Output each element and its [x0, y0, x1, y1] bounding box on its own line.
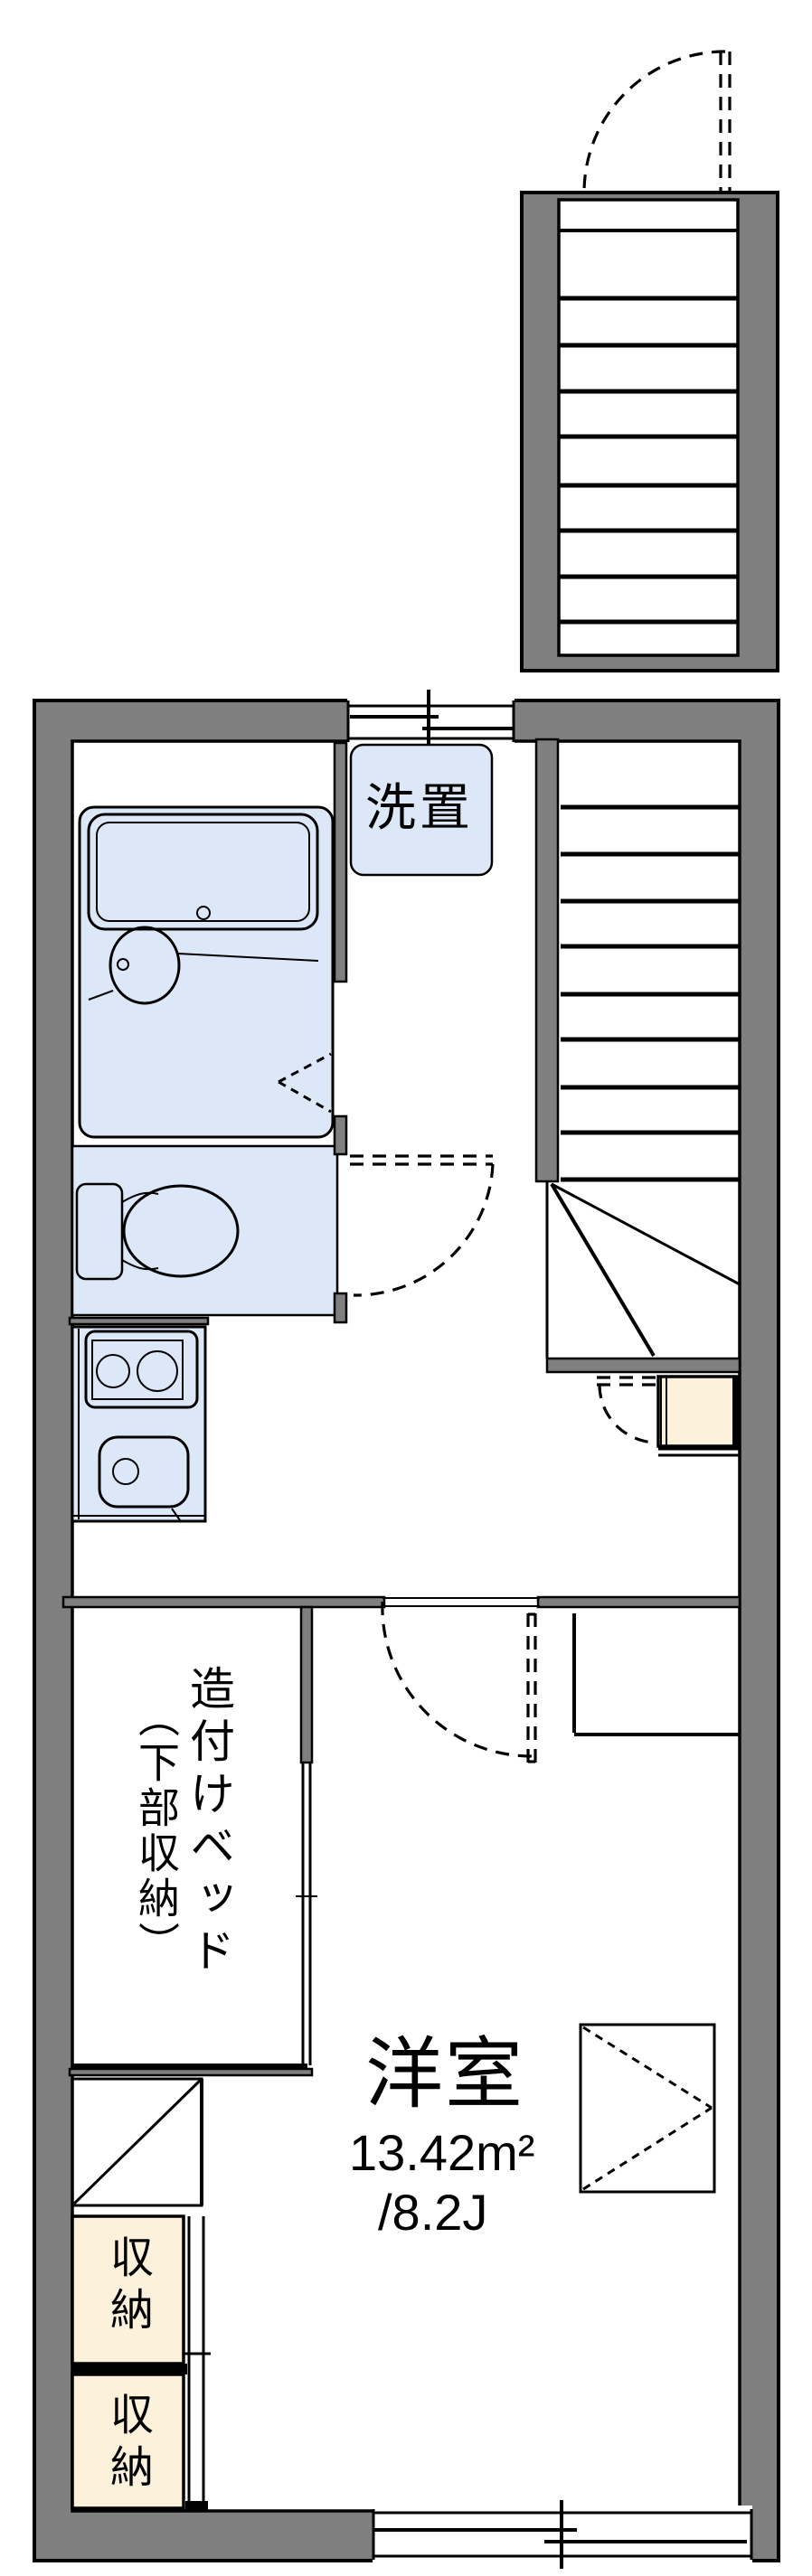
upper-entry-door-swing [584, 52, 730, 193]
bed-label-line1: 造付けベッド [186, 1665, 231, 1979]
storage-upper-label: 収納 [105, 2234, 148, 2339]
under-stair-cabinet [658, 1377, 739, 1455]
room-area-label: 13.42m² [349, 2128, 534, 2178]
storage-lower-label: 収納 [105, 2392, 148, 2496]
room-tatami-label: /8.2J [378, 2187, 487, 2238]
floor-plan-canvas: 洗置 造付けベッド （下部収納） 洋室 13.42m² /8.2J 収納 収納 [0, 0, 812, 2576]
room-name-label: 洋室 [365, 2035, 524, 2113]
storage-divider [72, 2364, 187, 2374]
washer-label: 洗置 [365, 783, 474, 833]
exterior-staircase [522, 193, 778, 671]
kitchen [72, 1327, 205, 1521]
bed-label-line2: （下部収納） [136, 1696, 177, 1967]
bathroom [80, 807, 333, 1137]
